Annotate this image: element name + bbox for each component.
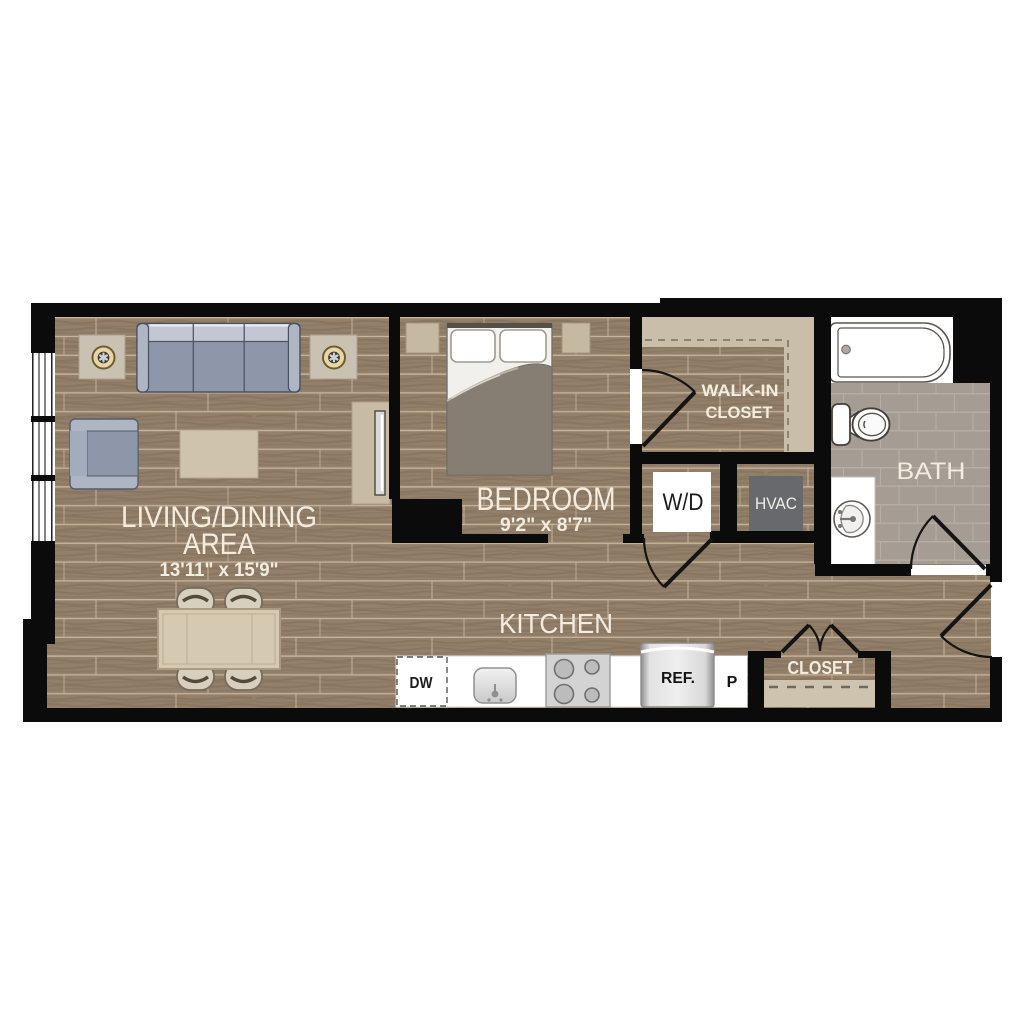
svg-text:BATH: BATH bbox=[897, 458, 966, 485]
svg-text:CLOSET: CLOSET bbox=[706, 403, 774, 422]
svg-text:CLOSET: CLOSET bbox=[788, 658, 853, 678]
svg-text:W/D: W/D bbox=[663, 489, 704, 516]
svg-text:13'11" x 15'9": 13'11" x 15'9" bbox=[160, 560, 279, 581]
svg-text:WALK-IN: WALK-IN bbox=[702, 381, 779, 400]
svg-text:BEDROOM: BEDROOM bbox=[477, 481, 616, 517]
svg-text:REF.: REF. bbox=[661, 670, 695, 687]
svg-text:KITCHEN: KITCHEN bbox=[499, 608, 613, 639]
svg-text:DW: DW bbox=[410, 675, 434, 692]
svg-text:9'2" x 8'7": 9'2" x 8'7" bbox=[500, 515, 592, 536]
svg-text:HVAC: HVAC bbox=[755, 494, 797, 513]
svg-text:AREA: AREA bbox=[183, 528, 255, 561]
svg-text:P: P bbox=[727, 674, 738, 691]
